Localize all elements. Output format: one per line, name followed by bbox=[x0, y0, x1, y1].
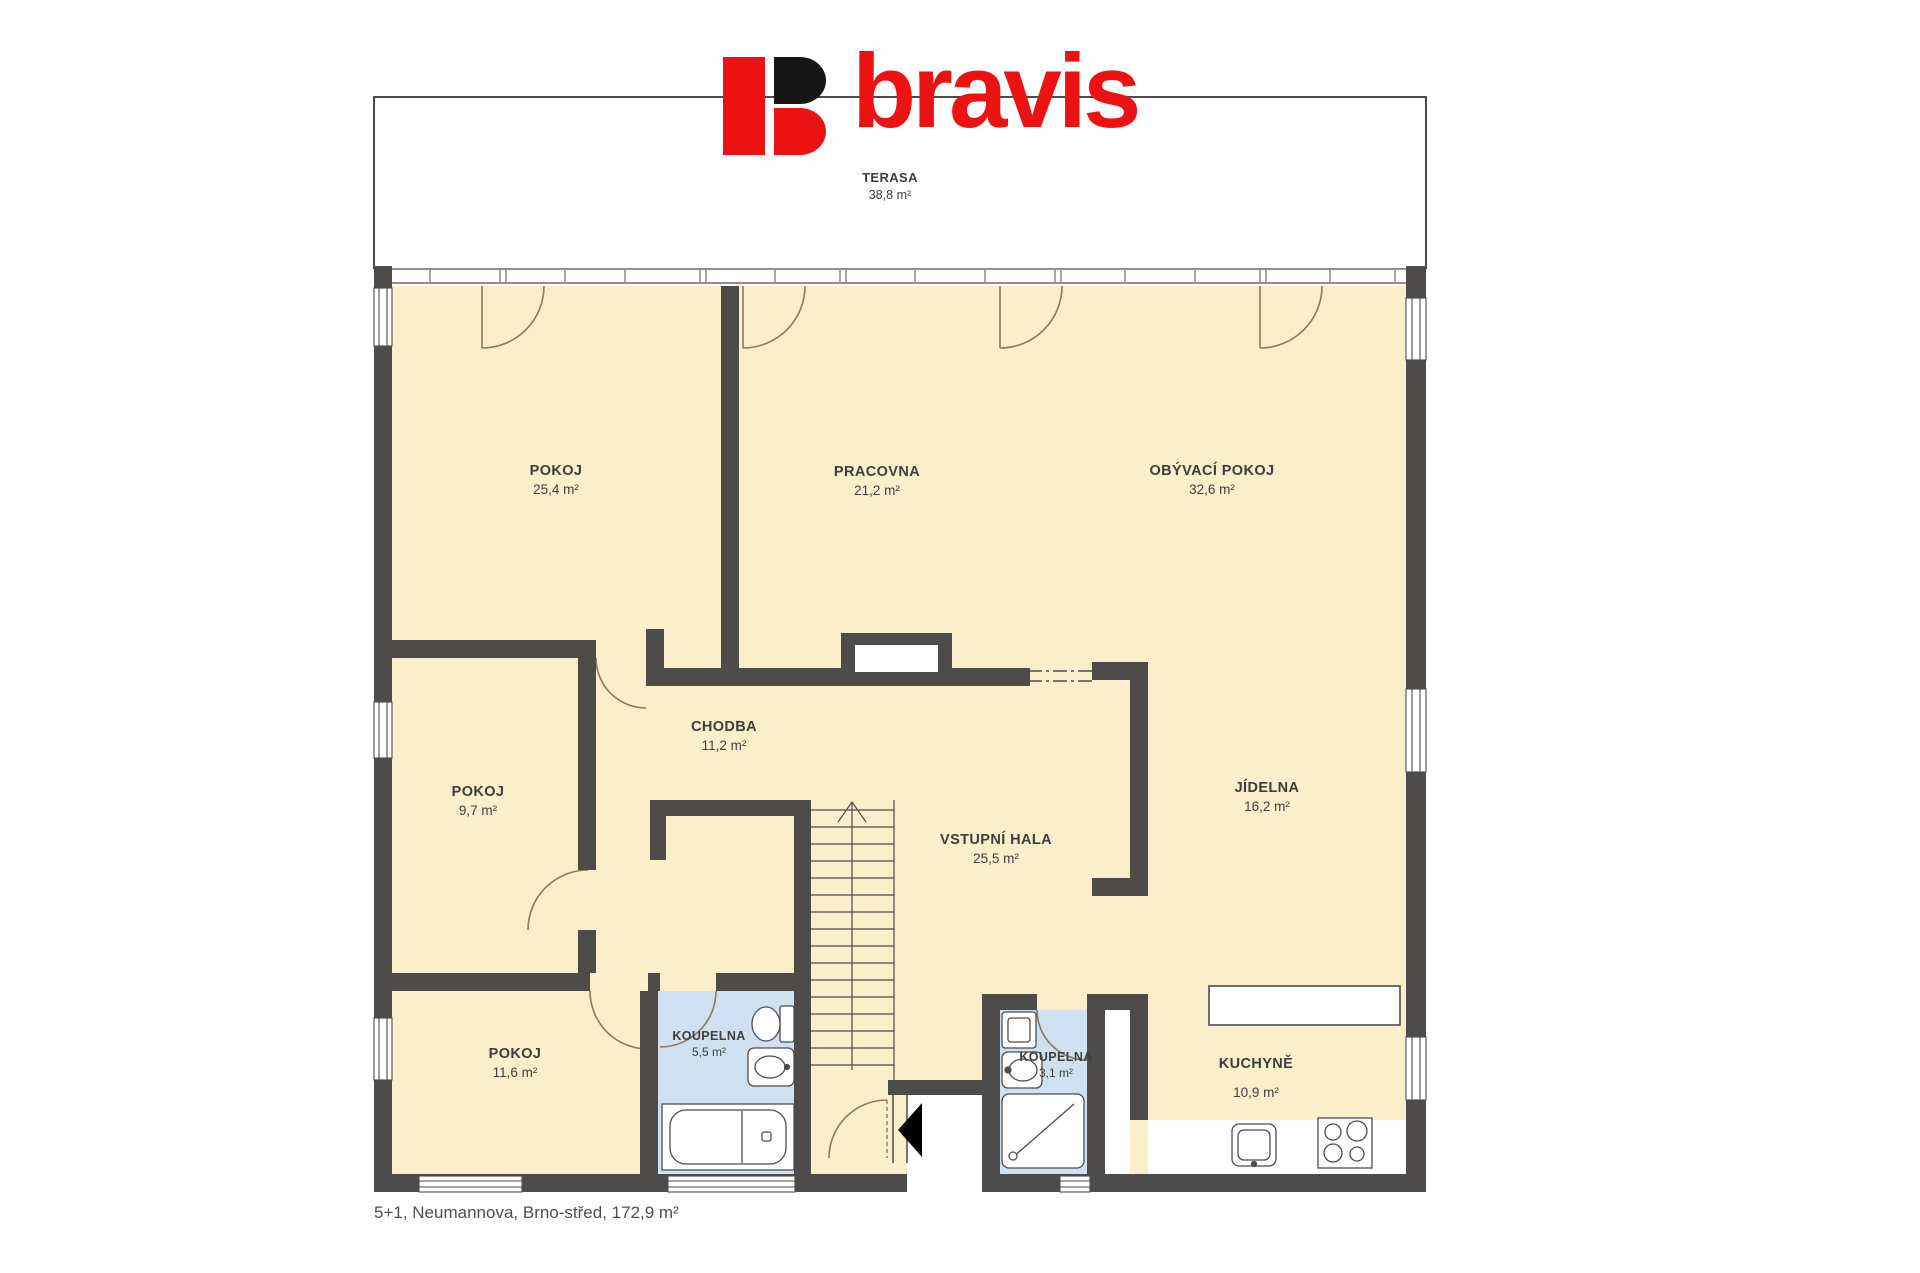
chimney-niche-inner bbox=[855, 645, 938, 672]
wall-hala-right bbox=[1130, 680, 1148, 878]
wall-kitchen-left bbox=[1130, 1010, 1148, 1120]
label-obyvaci-pokoj: OBÝVACÍ POKOJ 32,6 m² bbox=[1150, 463, 1275, 497]
label-vstupni-hala: VSTUPNÍ HALA 25,5 m² bbox=[940, 832, 1052, 866]
window-right-1 bbox=[1406, 298, 1426, 360]
label-pokoj-horni: POKOJ 25,4 m² bbox=[530, 463, 583, 497]
window-bottom-1 bbox=[419, 1176, 522, 1192]
window-left-3 bbox=[374, 1018, 392, 1080]
window-bottom-2 bbox=[668, 1176, 795, 1192]
washbasin-icon bbox=[748, 1048, 794, 1086]
window-left-2 bbox=[374, 702, 392, 758]
floor-plan-drawing bbox=[0, 0, 1920, 1273]
logo-bar bbox=[723, 57, 765, 155]
label-koupelna-velka: KOUPELNA 5,5 m² bbox=[672, 1029, 745, 1059]
kitchen-sink-icon bbox=[1232, 1124, 1276, 1167]
kitchen-island bbox=[1209, 986, 1400, 1025]
label-pracovna: PRACOVNA 21,2 m² bbox=[834, 464, 920, 498]
label-kuchyne: KUCHYNĚ 10,9 m² bbox=[1219, 1056, 1294, 1100]
label-pokoj-stredni: POKOJ 9,7 m² bbox=[452, 784, 505, 818]
label-koupelna-mala: KOUPELNA 3,1 m² bbox=[1019, 1050, 1092, 1080]
glazed-facade bbox=[392, 266, 1406, 286]
label-terasa: TERASA 38,8 m² bbox=[862, 170, 918, 202]
label-jidelna: JÍDELNA 16,2 m² bbox=[1235, 780, 1300, 814]
label-chodba: CHODBA 11,2 m² bbox=[691, 719, 757, 753]
shaft bbox=[1105, 1010, 1130, 1174]
window-left-1 bbox=[374, 288, 392, 346]
floorplan-page: bravis TERASA 38,8 m² POKOJ 25,4 m² PRAC… bbox=[0, 0, 1920, 1273]
wall-stairs-left bbox=[794, 800, 811, 1174]
window-right-3 bbox=[1406, 1037, 1426, 1100]
logo-b-icon bbox=[774, 57, 826, 155]
washer-icon bbox=[1002, 1012, 1036, 1048]
wall-outer-bottom-right bbox=[982, 1174, 1426, 1192]
toilet-icon bbox=[752, 1006, 794, 1042]
stove-icon bbox=[1318, 1118, 1372, 1168]
label-pokoj-dolni: POKOJ 11,6 m² bbox=[489, 1046, 542, 1080]
listing-caption: 5+1, Neumannova, Brno-střed, 172,9 m² bbox=[374, 1203, 679, 1223]
window-bottom-3 bbox=[1060, 1176, 1090, 1192]
window-right-2 bbox=[1406, 689, 1426, 772]
logo-wordmark: bravis bbox=[852, 43, 1137, 141]
bravis-logo: bravis bbox=[723, 57, 1137, 155]
wall-pokoj-koupelna bbox=[640, 991, 658, 1174]
shower-icon bbox=[1002, 1094, 1084, 1168]
bathtub-icon bbox=[662, 1104, 794, 1170]
wall-pokoj-pracovna bbox=[721, 286, 739, 686]
wall-closet bbox=[650, 800, 794, 816]
